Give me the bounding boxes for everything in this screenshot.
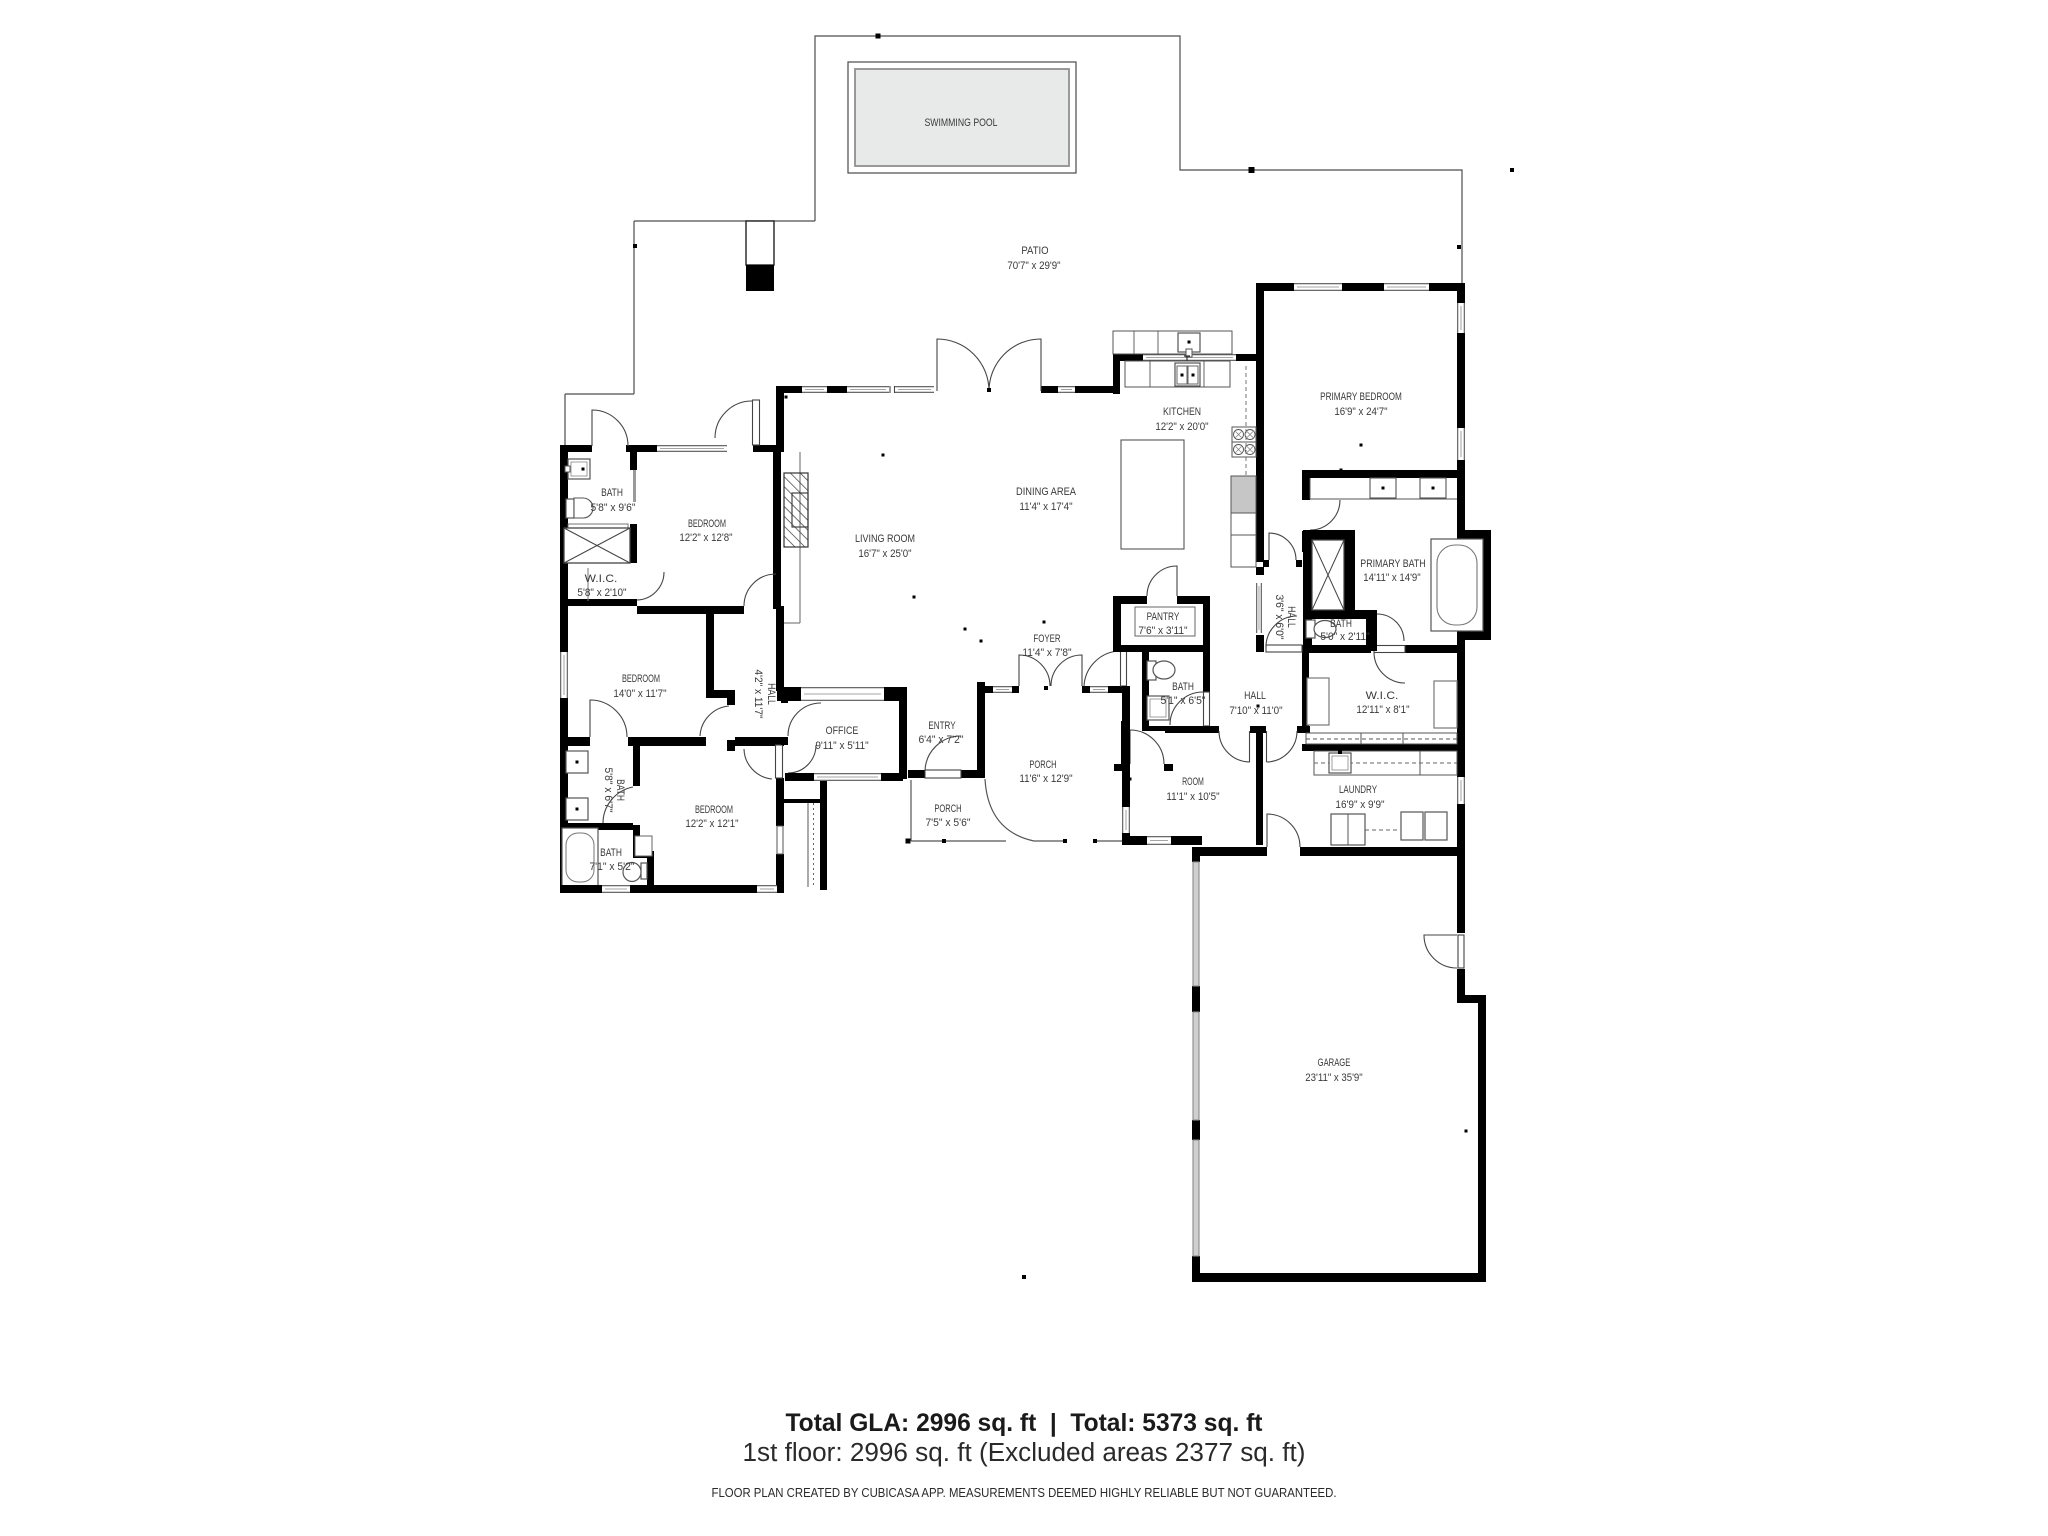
- svg-text:FLOOR PLAN CREATED BY CUBICASA: FLOOR PLAN CREATED BY CUBICASA APP. MEAS…: [712, 1485, 1337, 1500]
- svg-text:BATH: BATH: [600, 847, 622, 859]
- svg-text:GARAGE: GARAGE: [1318, 1057, 1351, 1069]
- svg-text:5'1" x 6'5": 5'1" x 6'5": [1160, 695, 1205, 707]
- svg-text:ROOM: ROOM: [1182, 776, 1204, 788]
- svg-text:5'8" x 2'10": 5'8" x 2'10": [577, 587, 626, 599]
- svg-text:HALL: HALL: [765, 683, 777, 705]
- svg-text:7'1" x 5'2": 7'1" x 5'2": [589, 861, 634, 873]
- svg-text:Total GLA: 2996 sq. ft | Tot: Total GLA: 2996 sq. ft | Total: 5373 sq.…: [786, 1409, 1264, 1437]
- svg-text:BEDROOM: BEDROOM: [688, 518, 726, 530]
- svg-text:BATH: BATH: [1330, 618, 1352, 630]
- svg-text:LIVING ROOM: LIVING ROOM: [855, 533, 915, 545]
- svg-text:BEDROOM: BEDROOM: [695, 804, 733, 816]
- svg-text:11'4" x 7'8": 11'4" x 7'8": [1022, 647, 1071, 659]
- svg-text:HALL: HALL: [1285, 606, 1297, 628]
- svg-text:12'2" x 12'1": 12'2" x 12'1": [685, 818, 738, 830]
- svg-text:PORCH: PORCH: [1029, 759, 1056, 771]
- svg-text:5'8" x 9'6": 5'8" x 9'6": [590, 502, 635, 514]
- svg-text:14'11" x 14'9": 14'11" x 14'9": [1363, 572, 1420, 584]
- svg-text:LAUNDRY: LAUNDRY: [1339, 784, 1377, 796]
- svg-text:7'10" x 11'0": 7'10" x 11'0": [1229, 705, 1282, 717]
- svg-text:KITCHEN: KITCHEN: [1163, 406, 1201, 418]
- svg-text:23'11" x 35'9": 23'11" x 35'9": [1305, 1072, 1362, 1084]
- svg-text:11'6" x 12'9": 11'6" x 12'9": [1019, 773, 1072, 785]
- svg-text:12'11" x 8'1": 12'11" x 8'1": [1356, 704, 1409, 716]
- svg-text:BATH: BATH: [1172, 681, 1194, 693]
- svg-text:6'4" x 7'2": 6'4" x 7'2": [918, 734, 963, 746]
- svg-text:70'7" x 29'9": 70'7" x 29'9": [1007, 260, 1060, 272]
- svg-text:16'9" x 24'7": 16'9" x 24'7": [1334, 406, 1387, 418]
- svg-text:ENTRY: ENTRY: [928, 720, 956, 732]
- svg-text:BEDROOM: BEDROOM: [622, 673, 660, 685]
- svg-text:12'2" x 20'0": 12'2" x 20'0": [1155, 421, 1208, 433]
- svg-text:16'9" x 9'9": 16'9" x 9'9": [1335, 799, 1384, 811]
- svg-text:FOYER: FOYER: [1033, 633, 1060, 645]
- svg-text:14'0" x 11'7": 14'0" x 11'7": [613, 688, 666, 700]
- svg-text:5'8" x 6'7": 5'8" x 6'7": [602, 767, 614, 812]
- svg-text:HALL: HALL: [1244, 690, 1266, 702]
- svg-text:12'2" x 12'8": 12'2" x 12'8": [679, 532, 732, 544]
- svg-text:4'2" x 11'7": 4'2" x 11'7": [752, 669, 764, 718]
- svg-text:PANTRY: PANTRY: [1147, 611, 1180, 623]
- svg-text:DINING AREA: DINING AREA: [1016, 486, 1076, 498]
- svg-text:9'11" x 5'11": 9'11" x 5'11": [815, 740, 868, 752]
- svg-text:OFFICE: OFFICE: [826, 725, 859, 737]
- svg-text:W.I.C.: W.I.C.: [1366, 690, 1399, 702]
- svg-text:SWIMMING POOL: SWIMMING POOL: [925, 117, 998, 129]
- svg-text:BATH: BATH: [601, 487, 623, 499]
- svg-text:PATIO: PATIO: [1021, 245, 1048, 257]
- svg-text:PORCH: PORCH: [934, 803, 961, 815]
- svg-text:W.I.C.: W.I.C.: [585, 573, 618, 585]
- svg-text:7'5" x 5'6": 7'5" x 5'6": [925, 817, 970, 829]
- svg-text:16'7" x 25'0": 16'7" x 25'0": [858, 548, 911, 560]
- svg-text:BATH: BATH: [614, 779, 626, 801]
- svg-text:1st floor: 2996 sq. ft (Exclud: 1st floor: 2996 sq. ft (Excluded areas 2…: [743, 1439, 1306, 1467]
- svg-text:7'6" x 3'11": 7'6" x 3'11": [1138, 625, 1187, 637]
- svg-text:11'4" x 17'4": 11'4" x 17'4": [1019, 501, 1072, 513]
- svg-text:PRIMARY BEDROOM: PRIMARY BEDROOM: [1320, 391, 1402, 403]
- svg-text:3'6" x 6'0": 3'6" x 6'0": [1273, 594, 1285, 639]
- svg-text:11'1" x 10'5": 11'1" x 10'5": [1166, 791, 1219, 803]
- svg-text:5'0" x 2'11": 5'0" x 2'11": [1320, 631, 1369, 643]
- svg-text:PRIMARY BATH: PRIMARY BATH: [1360, 558, 1425, 570]
